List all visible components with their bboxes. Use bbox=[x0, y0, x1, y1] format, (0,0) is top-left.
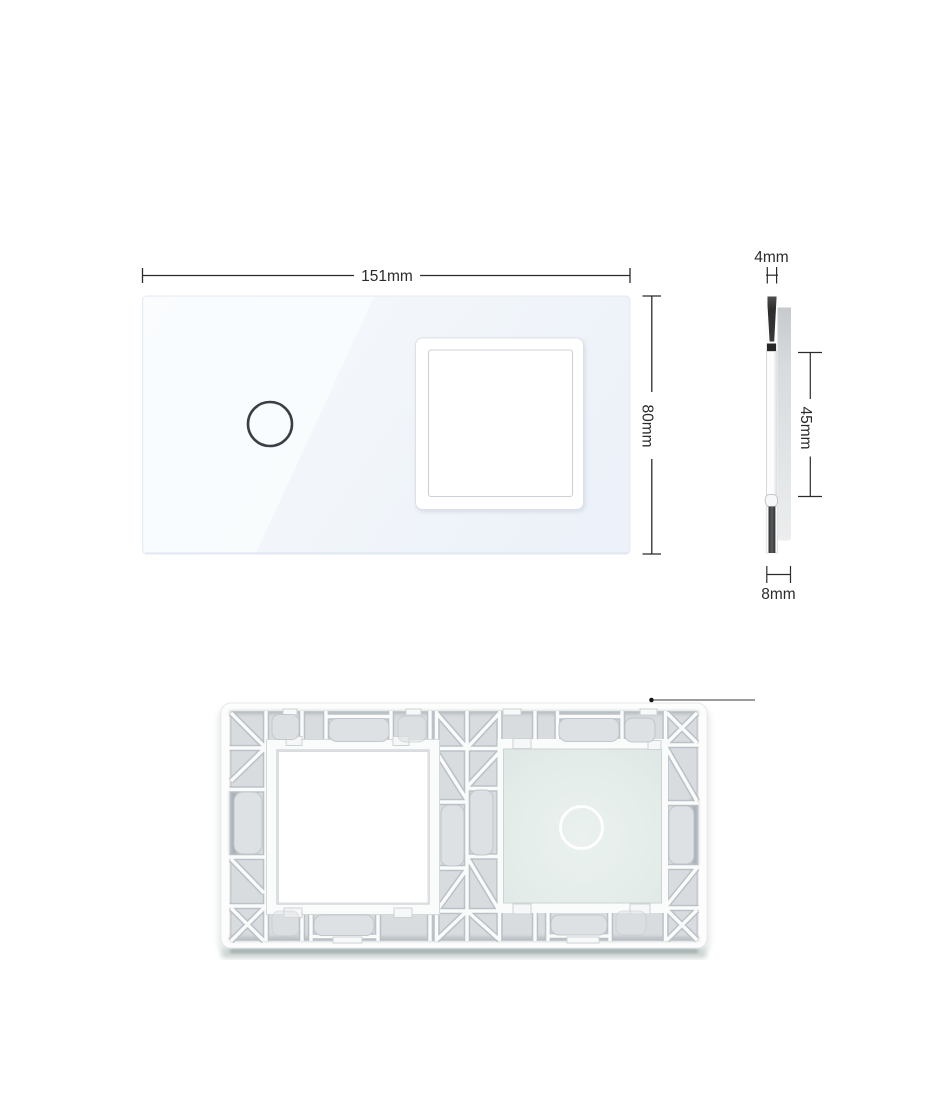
svg-text:80mm: 80mm bbox=[639, 404, 656, 447]
svg-text:151mm: 151mm bbox=[361, 268, 413, 285]
svg-text:4mm: 4mm bbox=[754, 249, 788, 266]
svg-text:45mm: 45mm bbox=[797, 406, 814, 449]
svg-text:8mm: 8mm bbox=[761, 586, 795, 603]
